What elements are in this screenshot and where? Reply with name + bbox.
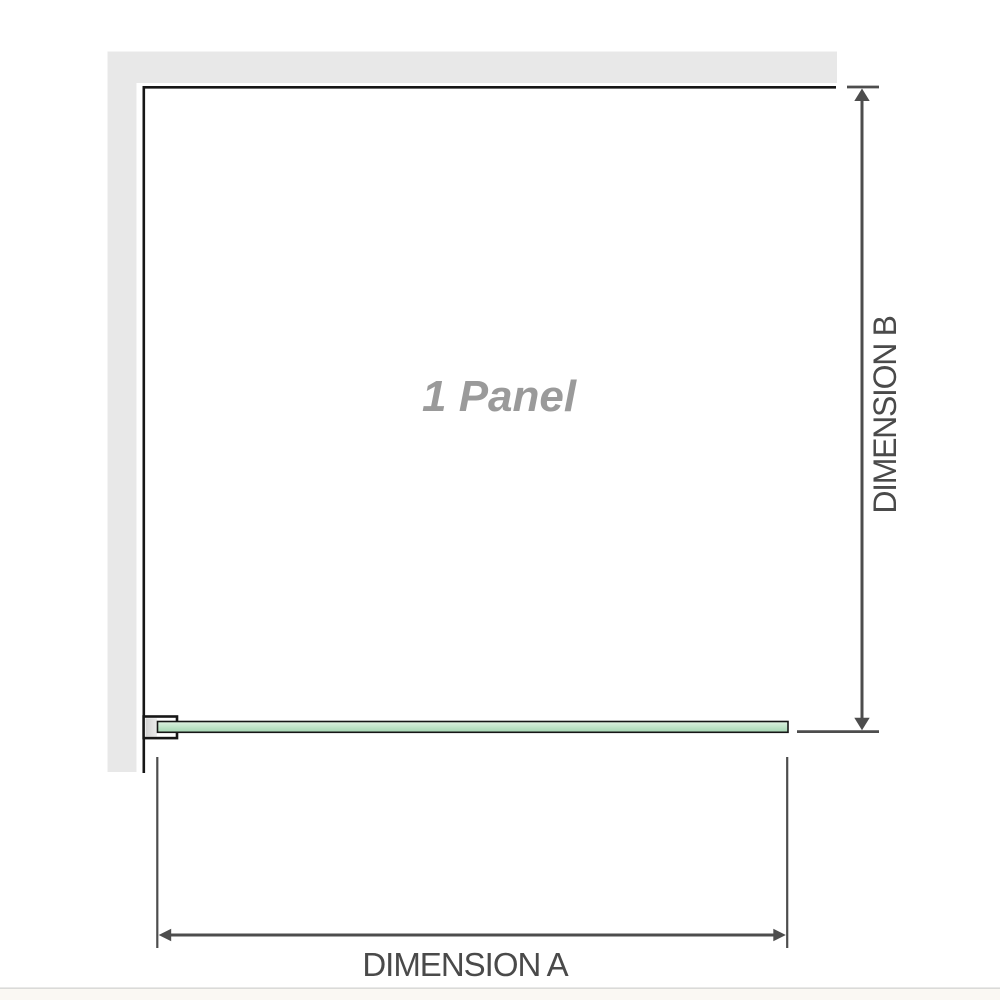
svg-text:DIMENSION B: DIMENSION B <box>867 316 903 513</box>
svg-text:DIMENSION A: DIMENSION A <box>362 946 568 983</box>
svg-text:1 Panel: 1 Panel <box>422 372 577 421</box>
